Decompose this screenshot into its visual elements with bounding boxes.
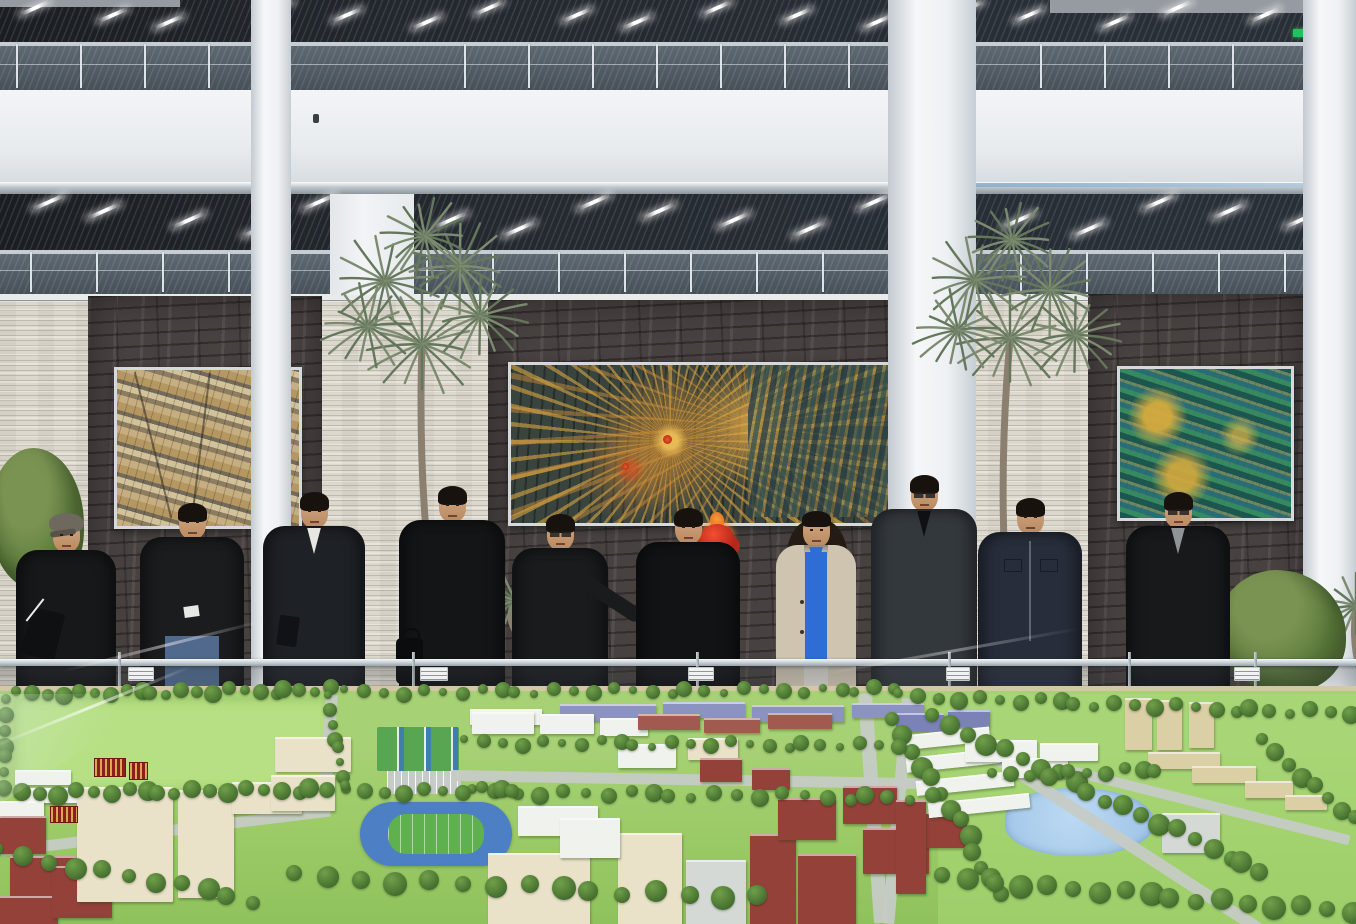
white-fascia-band	[0, 90, 1356, 182]
model-tree	[357, 783, 373, 799]
model-tree	[1113, 795, 1133, 815]
floor-slab-strip-left	[0, 0, 180, 7]
eyeglasses	[1168, 509, 1189, 515]
model-tree	[357, 684, 371, 698]
model-tree	[626, 739, 638, 751]
model-tree	[793, 735, 809, 751]
model-tree	[274, 680, 292, 698]
model-tree	[103, 785, 121, 803]
model-tree	[419, 870, 439, 890]
railing-post	[1284, 252, 1286, 292]
model-tree	[1209, 702, 1225, 718]
blouse	[805, 552, 827, 660]
model-tree	[819, 684, 827, 692]
model-tree	[601, 788, 617, 804]
railing-post	[208, 44, 210, 88]
model-tree	[222, 681, 236, 695]
railing-post	[1168, 44, 1170, 88]
hair	[1016, 498, 1045, 517]
coat-button	[800, 630, 804, 634]
bag-handle	[402, 628, 420, 640]
railing-post	[784, 44, 786, 88]
model-tree	[581, 788, 591, 798]
model-tree	[1089, 882, 1111, 904]
model-tree	[798, 687, 810, 699]
atrium-photo-scene	[0, 0, 1356, 924]
model-tree	[578, 881, 598, 901]
model-tree	[820, 790, 836, 806]
model-red-sign	[94, 758, 126, 777]
model-tree	[747, 885, 767, 905]
model-tree	[608, 682, 620, 694]
model-tree	[586, 685, 602, 701]
model-tree	[122, 869, 136, 883]
model-tree	[556, 784, 570, 798]
model-tree	[340, 685, 348, 693]
model-tree	[438, 786, 448, 796]
model-tree	[1009, 875, 1033, 899]
model-tree	[379, 787, 391, 799]
eyes	[810, 529, 813, 531]
model-tree	[146, 873, 166, 893]
blue-glass-beam-reflection	[976, 183, 1306, 187]
notebook	[276, 615, 300, 647]
chest-pocket	[1040, 559, 1058, 572]
model-tree	[836, 743, 844, 751]
model-tree	[987, 768, 997, 778]
model-tree	[478, 684, 488, 694]
mouth	[448, 515, 457, 517]
eyes	[186, 521, 189, 523]
model-tree	[328, 720, 338, 730]
model-tree	[552, 876, 576, 900]
model-tree	[925, 708, 939, 722]
model-tree	[706, 785, 722, 801]
railing-post	[528, 44, 530, 88]
model-tree	[418, 684, 430, 696]
case-label-tag	[420, 667, 448, 681]
mouth	[684, 537, 693, 539]
model-tree	[885, 712, 899, 726]
model-building	[1040, 743, 1098, 761]
model-tree	[508, 686, 520, 698]
case-label-tag	[1234, 667, 1260, 681]
eyeglasses	[550, 531, 571, 537]
model-tree	[1204, 839, 1224, 859]
railing-post	[1040, 44, 1042, 88]
model-tree	[1065, 881, 1081, 897]
model-tree	[395, 785, 413, 803]
model-tree	[814, 739, 826, 751]
railing-post	[162, 252, 164, 292]
model-tree	[455, 876, 471, 892]
mouth	[920, 504, 929, 506]
model-tree	[845, 794, 857, 806]
model-tree	[1117, 881, 1135, 899]
model-tree	[33, 787, 47, 801]
model-tree	[1089, 702, 1099, 712]
model-tree	[1348, 810, 1356, 824]
model-tree	[1191, 702, 1201, 712]
model-tree	[645, 880, 667, 902]
mouth	[1026, 527, 1035, 529]
model-tree	[1188, 894, 1204, 910]
model-tree	[1024, 770, 1036, 782]
model-tree	[1037, 875, 1057, 895]
railing-post	[756, 252, 758, 292]
model-building	[700, 758, 742, 782]
model-building	[704, 718, 760, 733]
model-tree	[521, 875, 539, 893]
case-label-tag	[128, 667, 154, 681]
model-tree	[1325, 706, 1337, 718]
model-tree	[763, 739, 777, 753]
model-tree	[720, 689, 728, 697]
model-tree	[531, 787, 549, 805]
railing-post	[16, 44, 18, 88]
railing-post	[228, 252, 230, 292]
model-tree	[751, 789, 769, 807]
model-tree	[626, 785, 638, 797]
model-tree	[1098, 766, 1114, 782]
railing-post	[1232, 44, 1234, 88]
model-tree	[836, 683, 850, 697]
model-tree	[1016, 752, 1030, 766]
model-tree	[253, 684, 269, 700]
model-tree	[910, 688, 926, 704]
railing-post	[464, 44, 466, 88]
model-tree	[933, 693, 945, 705]
model-tree	[676, 681, 692, 697]
mouth	[812, 540, 821, 542]
hair	[178, 503, 207, 522]
model-tree	[681, 886, 699, 904]
mouth	[188, 532, 197, 534]
model-tree	[173, 682, 189, 698]
model-tree	[646, 685, 660, 699]
mouth	[556, 543, 565, 545]
model-building	[540, 714, 594, 734]
model-tree	[1256, 733, 1268, 745]
model-tree	[1291, 895, 1311, 915]
model-tree	[515, 738, 531, 754]
railing-post	[720, 44, 722, 88]
model-tree	[238, 780, 254, 796]
railing-post	[96, 252, 98, 292]
model-tree	[379, 688, 389, 698]
model-red-sign	[50, 806, 78, 823]
model-building	[472, 712, 534, 734]
model-stadium-pitch	[388, 814, 484, 854]
model-tree	[41, 855, 57, 871]
model-tree	[240, 685, 250, 695]
model-tree	[13, 846, 33, 866]
model-building	[560, 818, 620, 858]
sunburst-core	[663, 435, 672, 444]
model-tree	[866, 679, 882, 695]
model-tree	[258, 784, 270, 796]
model-tree	[217, 887, 235, 905]
model-tree	[731, 789, 743, 801]
sunburst-core	[622, 463, 629, 470]
model-tree	[530, 690, 538, 698]
model-tree	[498, 738, 508, 748]
model-tree	[324, 691, 332, 699]
eyes	[308, 510, 311, 512]
model-tree	[88, 786, 100, 798]
coat-button	[800, 600, 804, 604]
model-tree	[1230, 851, 1252, 873]
railing-post	[558, 252, 560, 292]
model-tree	[776, 683, 792, 699]
model-tree	[1098, 795, 1112, 809]
railing-post	[1152, 252, 1154, 292]
model-tree	[891, 739, 907, 755]
model-tree	[292, 683, 306, 697]
model-tree	[317, 866, 339, 888]
architectural-scale-model	[0, 686, 1356, 924]
model-tree	[569, 686, 579, 696]
hair	[300, 492, 329, 511]
railing-post	[1218, 252, 1220, 292]
model-tree	[1285, 709, 1295, 719]
model-tree	[456, 687, 470, 701]
model-tree	[893, 688, 903, 698]
railing-post	[1104, 44, 1106, 88]
hair	[438, 486, 467, 505]
model-tree	[614, 887, 630, 903]
model-tree	[986, 874, 1004, 892]
model-tree	[383, 872, 407, 896]
model-tree	[319, 782, 335, 798]
mouth	[62, 545, 71, 547]
model-red-sign	[129, 762, 148, 780]
model-tree	[934, 867, 950, 883]
model-tree	[759, 684, 769, 694]
mouth	[1174, 521, 1183, 523]
model-building	[896, 800, 926, 894]
model-tree	[455, 785, 471, 801]
model-tree	[396, 687, 412, 703]
model-tree	[1240, 699, 1258, 717]
model-tree	[737, 681, 751, 695]
wall-mounted-device	[313, 114, 319, 123]
model-tree	[286, 865, 302, 881]
railing-post	[592, 44, 594, 88]
zipper	[1029, 541, 1031, 641]
model-tree	[1040, 768, 1058, 786]
model-tree	[477, 734, 491, 748]
model-sports-courts	[377, 727, 459, 771]
chest-pocket	[1004, 559, 1022, 572]
eyes	[682, 526, 685, 528]
model-tree	[648, 743, 656, 751]
model-tree	[661, 789, 675, 803]
railing-post	[624, 252, 626, 292]
model-tree	[575, 738, 589, 752]
model-tree	[1211, 888, 1233, 910]
model-tree	[746, 740, 754, 748]
case-label-tag	[946, 667, 970, 681]
model-tree	[856, 786, 874, 804]
model-tree	[597, 735, 607, 745]
model-tree	[246, 896, 260, 910]
model-tree	[1262, 896, 1286, 920]
railing-post	[30, 252, 32, 292]
model-tree	[310, 687, 320, 697]
model-tree	[191, 686, 203, 698]
model-tree	[174, 875, 190, 891]
model-tree	[1342, 706, 1356, 724]
model-tree	[547, 682, 561, 696]
model-building	[618, 833, 682, 924]
model-tree	[698, 685, 710, 697]
eyes	[446, 504, 449, 506]
model-tree	[925, 787, 941, 803]
model-tree	[874, 740, 884, 750]
model-tree	[905, 795, 915, 805]
model-tree	[1239, 895, 1257, 913]
model-tree	[1147, 764, 1161, 778]
railing-post	[690, 252, 692, 292]
model-tree	[1319, 901, 1335, 917]
model-tree	[417, 782, 431, 796]
model-building	[0, 896, 58, 924]
mouth	[310, 521, 319, 523]
model-tree	[1282, 758, 1296, 772]
model-tree	[558, 739, 566, 747]
model-building	[798, 854, 856, 924]
model-tree	[853, 736, 867, 750]
model-tree	[1262, 704, 1276, 718]
model-tree	[973, 690, 987, 704]
model-tree	[352, 871, 370, 889]
display-case-top-rail	[0, 659, 1356, 666]
railing-post	[848, 44, 850, 88]
model-tree	[1169, 697, 1183, 711]
eyes	[1024, 516, 1027, 518]
model-building	[1285, 795, 1327, 810]
model-tree	[1188, 832, 1202, 846]
model-tree	[537, 735, 549, 747]
model-tree	[505, 784, 519, 798]
model-tree	[123, 782, 137, 796]
model-tree	[1082, 768, 1092, 778]
model-tree	[1250, 863, 1268, 881]
model-tree	[963, 843, 981, 861]
model-tree	[204, 685, 222, 703]
model-tree	[1013, 695, 1029, 711]
hair	[802, 511, 831, 527]
model-tree	[149, 785, 165, 801]
hair	[674, 508, 703, 527]
railing-post	[656, 44, 658, 88]
railing-midrail-upper	[0, 64, 1356, 65]
eyeglasses	[914, 492, 935, 498]
model-tree	[686, 793, 696, 803]
glass-railing-upper-floor	[0, 42, 1356, 97]
model-tree	[340, 780, 350, 790]
model-building	[768, 713, 832, 729]
model-tree	[439, 688, 447, 696]
model-tree	[1307, 777, 1323, 793]
model-tree	[629, 686, 637, 694]
model-tree	[996, 739, 1014, 757]
model-tree	[48, 786, 68, 806]
railing-post	[822, 252, 824, 292]
model-tree	[665, 735, 679, 749]
model-tree	[460, 735, 468, 743]
eyes	[60, 534, 63, 536]
case-label-tag	[688, 667, 714, 681]
railing-post	[80, 44, 82, 88]
white-paper	[183, 605, 199, 618]
model-building	[638, 714, 700, 730]
railing-post	[144, 44, 146, 88]
model-building	[750, 834, 796, 924]
model-tree	[1106, 695, 1122, 711]
